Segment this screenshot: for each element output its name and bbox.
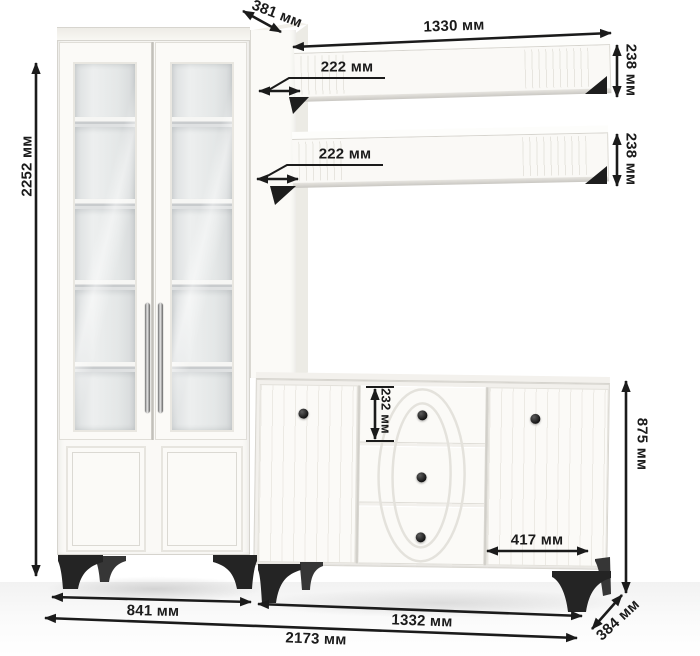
dim-label-door-width: 417 мм bbox=[511, 532, 564, 549]
cabinet-floor-shadow bbox=[42, 576, 267, 602]
door-knob-right bbox=[530, 414, 540, 424]
dim-label-total-width: 2173 мм bbox=[285, 629, 347, 648]
door-handle-right bbox=[158, 303, 163, 413]
glass-panel-right bbox=[170, 62, 234, 432]
shelf-grooves-right bbox=[522, 136, 587, 176]
dim-label-shelf-width: 1330 мм bbox=[423, 16, 485, 35]
cabinet-top-face bbox=[57, 27, 250, 40]
drawer-knob-middle bbox=[416, 472, 426, 482]
bottom-panel-left bbox=[66, 446, 146, 552]
glass-panel-left bbox=[73, 62, 137, 432]
dim-label-shelf-height-upper: 238 мм bbox=[623, 44, 640, 97]
shelf-grooves-right bbox=[524, 48, 589, 89]
door-knob-left bbox=[298, 409, 308, 419]
dim-label-total-height: 2252 мм bbox=[19, 135, 36, 196]
door-gap bbox=[151, 42, 154, 440]
glass-reflection bbox=[172, 64, 232, 430]
furniture-dimension-diagram: 2252 мм 381 мм 1330 мм 222 мм 222 мм 238… bbox=[0, 0, 700, 656]
dim-label-sideboard-width: 1332 мм bbox=[391, 611, 453, 630]
dim-label-drawer-height: 232 мм bbox=[379, 388, 394, 434]
dim-label-sideboard-height: 875 мм bbox=[634, 418, 651, 471]
dim-label-cabinet-width: 841 мм bbox=[127, 602, 180, 620]
drawer-knob-bottom bbox=[416, 532, 426, 542]
panel-inset bbox=[167, 452, 237, 546]
dim-label-shelf-height-lower: 238 мм bbox=[623, 133, 640, 186]
drawer-knob-top bbox=[417, 410, 427, 420]
glass-reflection bbox=[75, 64, 135, 430]
column-front-face bbox=[250, 30, 296, 378]
dim-label-shelf-depth-lower: 222 мм bbox=[319, 146, 372, 163]
panel-inset bbox=[72, 452, 140, 546]
door-handle-left bbox=[145, 303, 150, 413]
bottom-panel-right bbox=[161, 446, 243, 552]
dim-label-shelf-depth-upper: 222 мм bbox=[321, 59, 374, 76]
